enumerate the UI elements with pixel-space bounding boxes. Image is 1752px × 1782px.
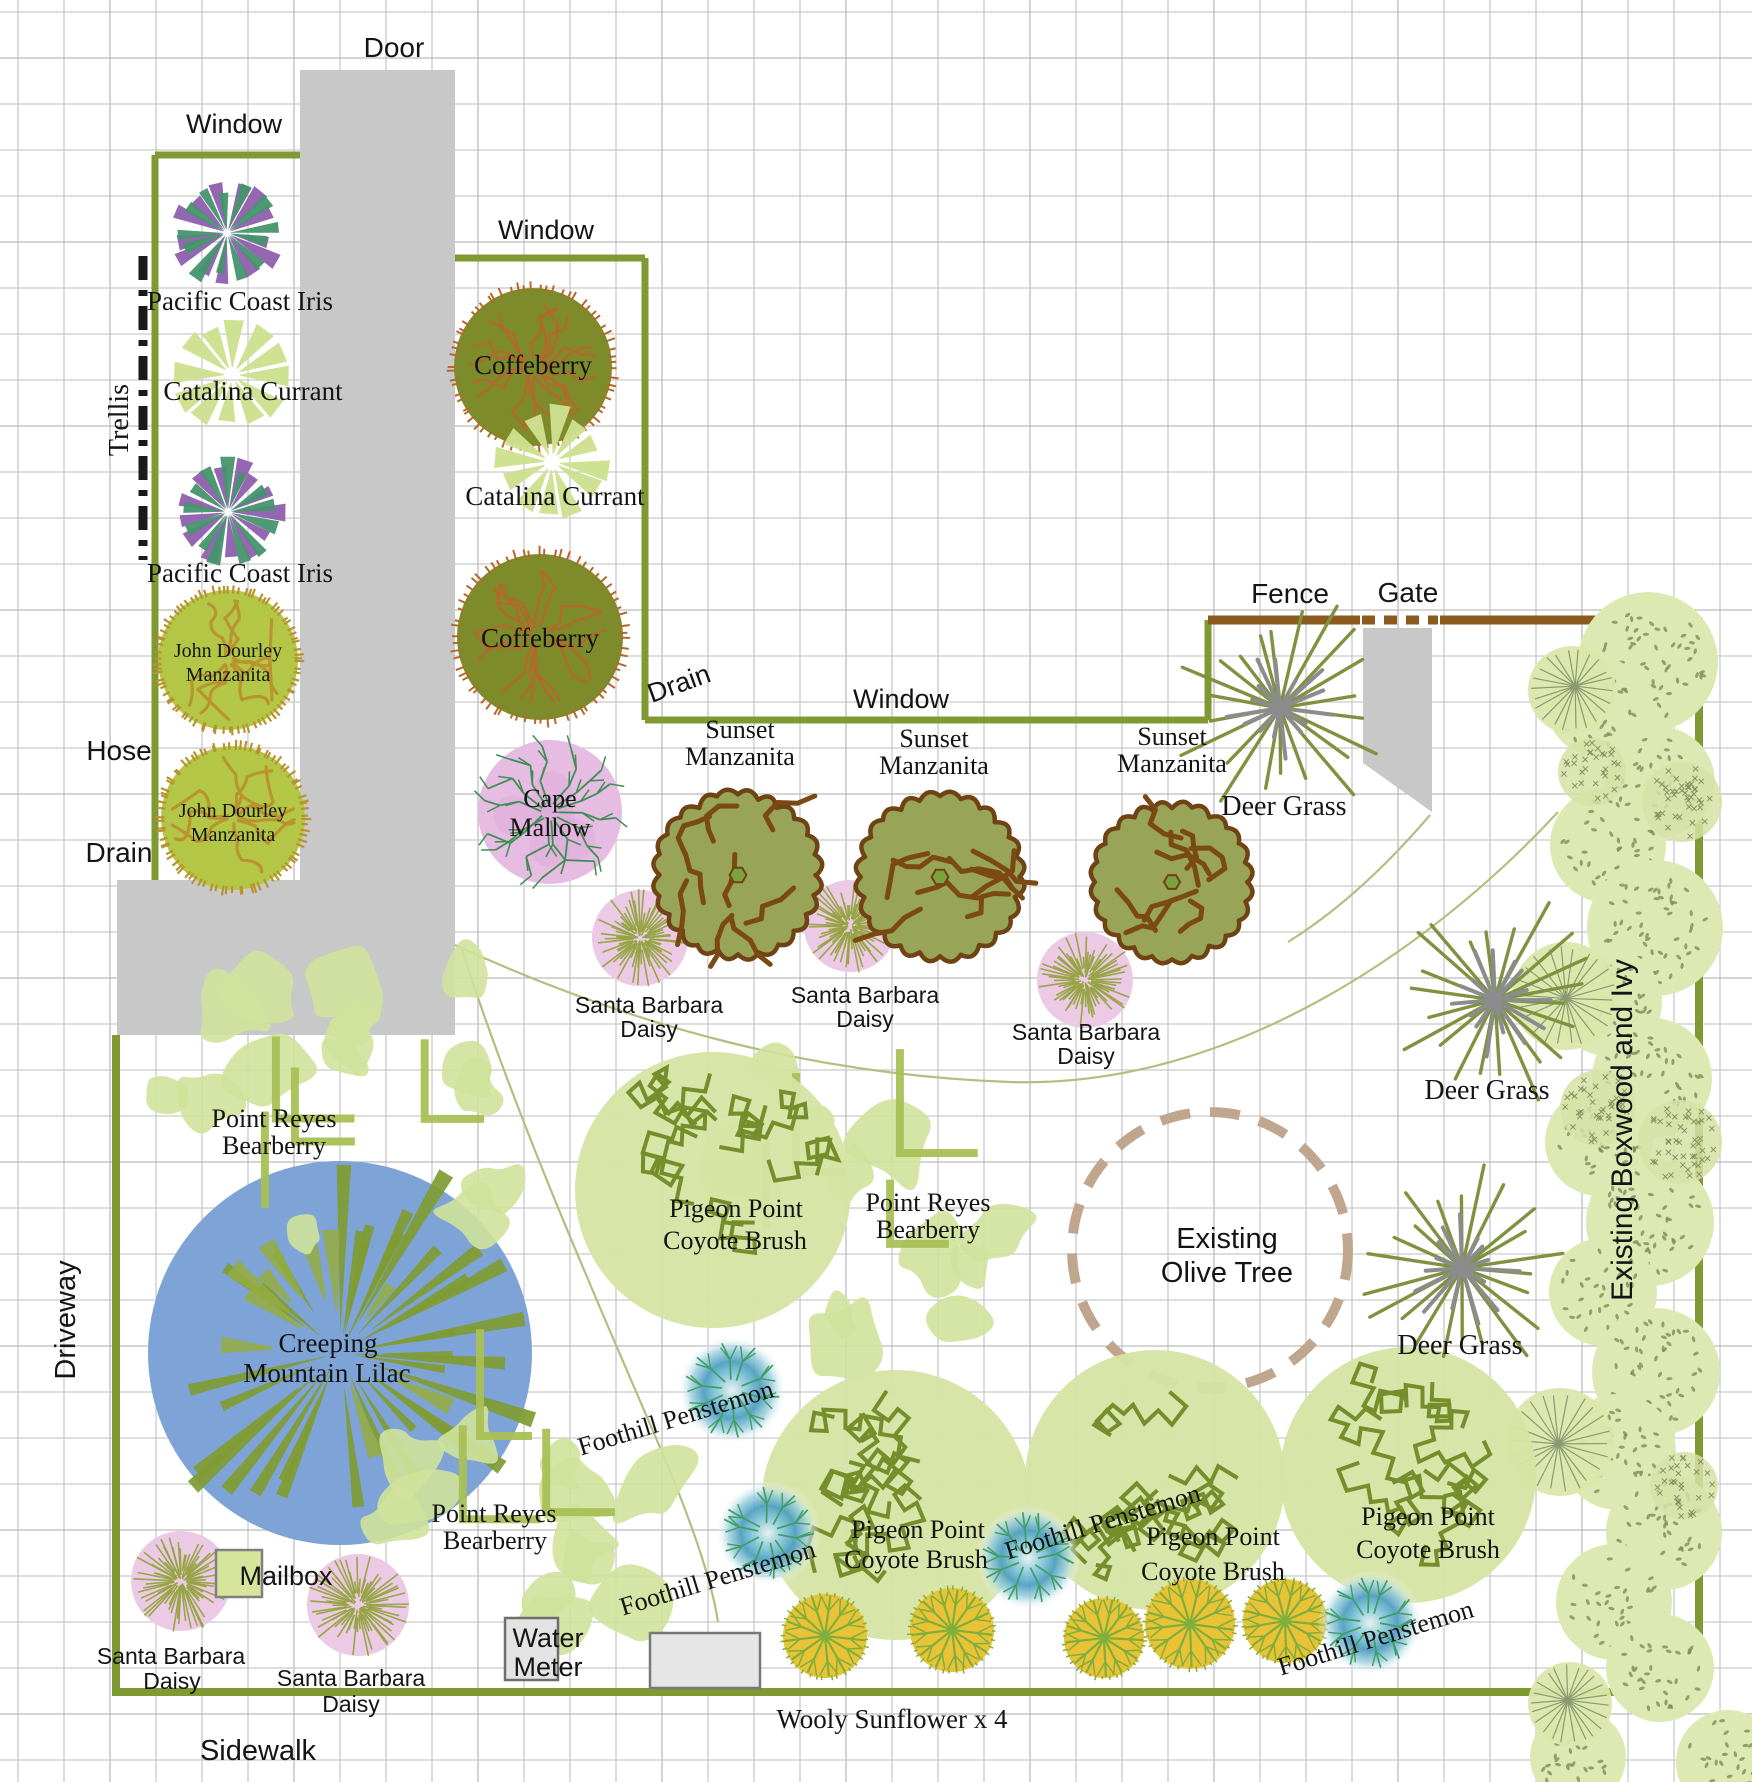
label-gate-8: Gate [1378, 577, 1439, 608]
label-sidewalk-10: Sidewalk [200, 1735, 317, 1767]
label-mailbox-11: Mailbox [239, 1561, 333, 1591]
plant-symbol-existing-boxwood [1676, 1710, 1752, 1782]
plant-symbol-existing-ivy [1650, 1452, 1718, 1520]
gate-swing-pad [1363, 628, 1432, 812]
label-pacific-coast-iris-29: Pacific Coast Iris [147, 558, 333, 588]
label-daisy-22: Daisy [1057, 1043, 1115, 1069]
label-creeping-49: Creeping [279, 1328, 378, 1358]
label-water-12: Water [512, 1623, 583, 1653]
label-point-reyes-51: Point Reyes [212, 1104, 337, 1133]
label-window-3: Window [853, 684, 950, 714]
label-catalina-currant-35: Catalina Currant [465, 481, 645, 511]
label-pigeon-point-63: Pigeon Point [1361, 1502, 1495, 1531]
label-deer-grass-47: Deer Grass [1424, 1075, 1549, 1106]
label-coyote-brush-64: Coyote Brush [1356, 1535, 1500, 1564]
label-fence-7: Fence [1251, 578, 1329, 609]
label-manzanita-43: Manzanita [879, 751, 989, 780]
label-manzanita-31: Manzanita [186, 664, 271, 686]
label-manzanita-33: Manzanita [191, 824, 276, 846]
plant-symbol-sunset-manzanita-1 [653, 790, 822, 967]
label-door-0: Door [364, 32, 425, 63]
plant-symbol-pigeon-point-coyote-brush-4 [1280, 1347, 1536, 1603]
label-mountain-lilac-50: Mountain Lilac [243, 1358, 410, 1388]
plant-symbol-pacific-coast-iris-1 [173, 182, 281, 284]
label-pigeon-point-59: Pigeon Point [851, 1515, 985, 1544]
label-santa-barbara-23: Santa Barbara [97, 1643, 246, 1669]
label-hose-4: Hose [86, 735, 151, 766]
label-daisy-20: Daisy [836, 1006, 894, 1032]
label-john-dourley-32: John Dourley [179, 800, 287, 822]
label-coyote-brush-62: Coyote Brush [1141, 1557, 1285, 1586]
label-daisy-26: Daisy [322, 1691, 380, 1717]
label-existing-boxwood-and-ivy-16: Existing Boxwood and Ivy [1606, 959, 1639, 1301]
label-deer-grass-46: Deer Grass [1221, 791, 1346, 822]
label-pigeon-point-57: Pigeon Point [669, 1194, 803, 1223]
label-meter-13: Meter [513, 1652, 582, 1682]
garden-plan-canvas: DoorWindowWindowWindowHoseDrainDrainFenc… [0, 0, 1752, 1782]
label-santa-barbara-17: Santa Barbara [575, 992, 724, 1018]
plant-symbol-santa-barbara-daisy-3 [1037, 932, 1133, 1028]
label-coyote-brush-58: Coyote Brush [663, 1226, 807, 1255]
plant-symbol-existing-ivy [1528, 1662, 1612, 1746]
label-santa-barbara-21: Santa Barbara [1012, 1019, 1161, 1045]
plant-symbol-existing-ivy [1528, 646, 1616, 734]
label-santa-barbara-19: Santa Barbara [791, 982, 940, 1008]
plant-symbol-pacific-coast-iris-2 [178, 457, 285, 566]
label-daisy-24: Daisy [143, 1668, 201, 1694]
label-pacific-coast-iris-27: Pacific Coast Iris [147, 286, 333, 316]
label-wooly-sunflower-x-4-69: Wooly Sunflower x 4 [776, 1704, 1008, 1734]
label-drain-6: Drain [643, 658, 714, 708]
label-cape-37: Cape [523, 784, 576, 813]
garden-plan-drawing: DoorWindowWindowWindowHoseDrainDrainFenc… [0, 0, 1752, 1782]
label-window-2: Window [498, 215, 595, 245]
plant-symbol-deer-grass-3 [1364, 1165, 1563, 1356]
label-coffeberry-34: Coffeberry [474, 350, 592, 380]
label-bearberry-52: Bearberry [222, 1131, 326, 1160]
label-point-reyes-53: Point Reyes [866, 1188, 991, 1217]
label-john-dourley-30: John Dourley [174, 640, 282, 662]
label-bearberry-56: Bearberry [443, 1526, 547, 1555]
plant-symbol-existing-ivy [1638, 1100, 1722, 1184]
label-santa-barbara-25: Santa Barbara [277, 1665, 426, 1691]
label-olive-tree-15: Olive Tree [1161, 1257, 1293, 1289]
label-deer-grass-48: Deer Grass [1397, 1330, 1522, 1361]
label-existing-14: Existing [1176, 1223, 1278, 1255]
plant-symbol-existing-ivy [1512, 942, 1620, 1050]
label-catalina-currant-28: Catalina Currant [163, 376, 343, 406]
label-point-reyes-55: Point Reyes [432, 1499, 557, 1528]
label-sunset-40: Sunset [705, 715, 775, 744]
garden-path-edge [1288, 815, 1430, 942]
label-coyote-brush-60: Coyote Brush [844, 1545, 988, 1574]
label-window-1: Window [186, 109, 283, 139]
plant-symbol-pigeon-point-coyote-brush-1 [575, 1052, 851, 1328]
label-drain-5: Drain [86, 837, 153, 868]
plant-symbol-existing-ivy [1558, 738, 1626, 806]
plant-symbol-catalina-currant-1 [174, 320, 289, 425]
label-pigeon-point-61: Pigeon Point [1146, 1522, 1280, 1551]
label-manzanita-45: Manzanita [1117, 749, 1227, 778]
label-trellis-39: Trellis [104, 384, 135, 456]
label-coffeberry-36: Coffeberry [481, 623, 599, 653]
label-bearberry-54: Bearberry [876, 1215, 980, 1244]
plant-symbol-existing-ivy [1642, 762, 1722, 842]
label-mallow-38: Mallow [510, 813, 591, 842]
label-manzanita-41: Manzanita [685, 742, 795, 771]
plant-symbol-existing-boxwood [1606, 1614, 1714, 1722]
label-sunset-42: Sunset [899, 724, 969, 753]
label-daisy-18: Daisy [620, 1016, 678, 1042]
label-sunset-44: Sunset [1137, 722, 1207, 751]
label-driveway-9: Driveway [50, 1260, 82, 1380]
utility-pad [650, 1633, 760, 1688]
